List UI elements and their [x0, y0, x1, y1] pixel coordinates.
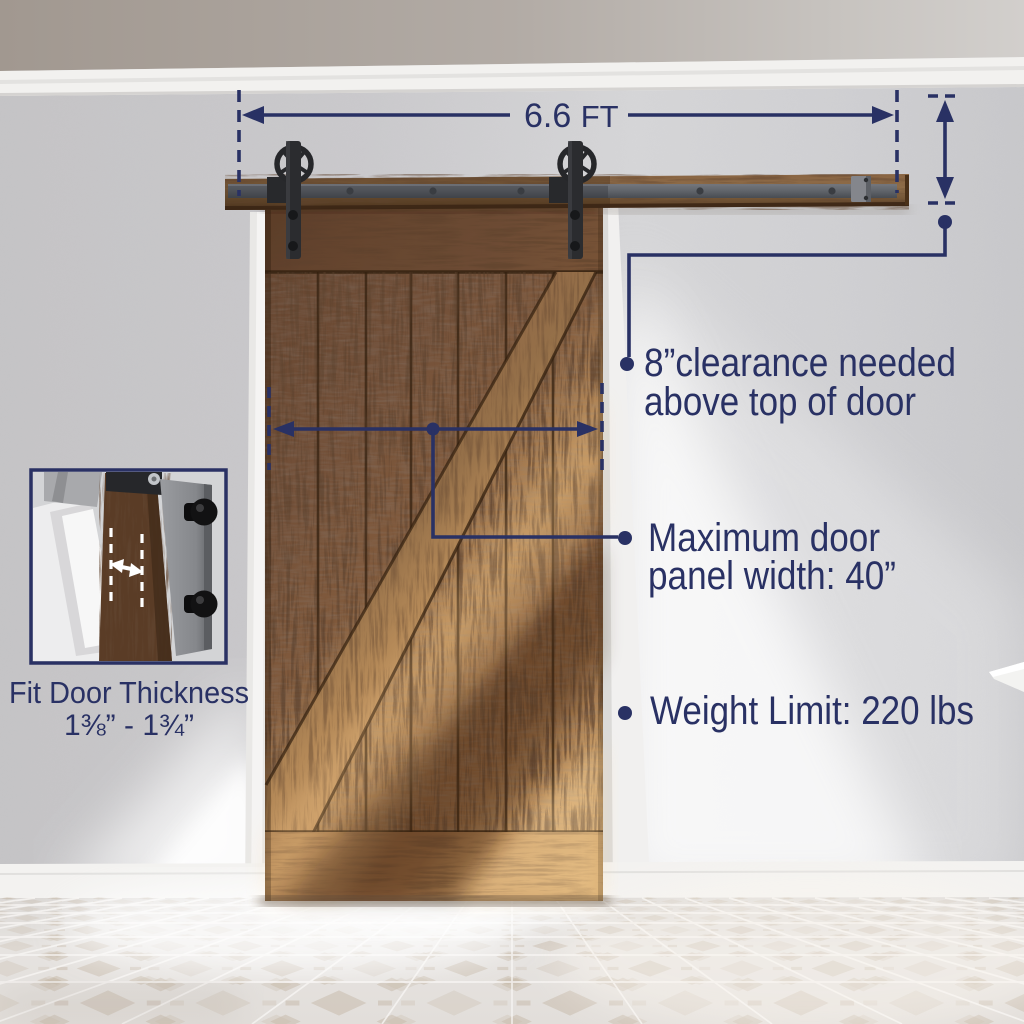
svg-text:above top of door: above top of door [644, 380, 916, 424]
svg-text:Weight Limit: 220 lbs: Weight Limit: 220 lbs [650, 689, 974, 733]
svg-text:Fit Door Thickness: Fit Door Thickness [9, 675, 249, 710]
svg-text:6.6 FT: 6.6 FT [524, 97, 619, 135]
svg-text:1⅜” - 1¾”: 1⅜” - 1¾” [64, 709, 194, 742]
svg-text:8”clearance needed: 8”clearance needed [644, 341, 956, 385]
svg-text:panel width: 40”: panel width: 40” [648, 554, 896, 598]
